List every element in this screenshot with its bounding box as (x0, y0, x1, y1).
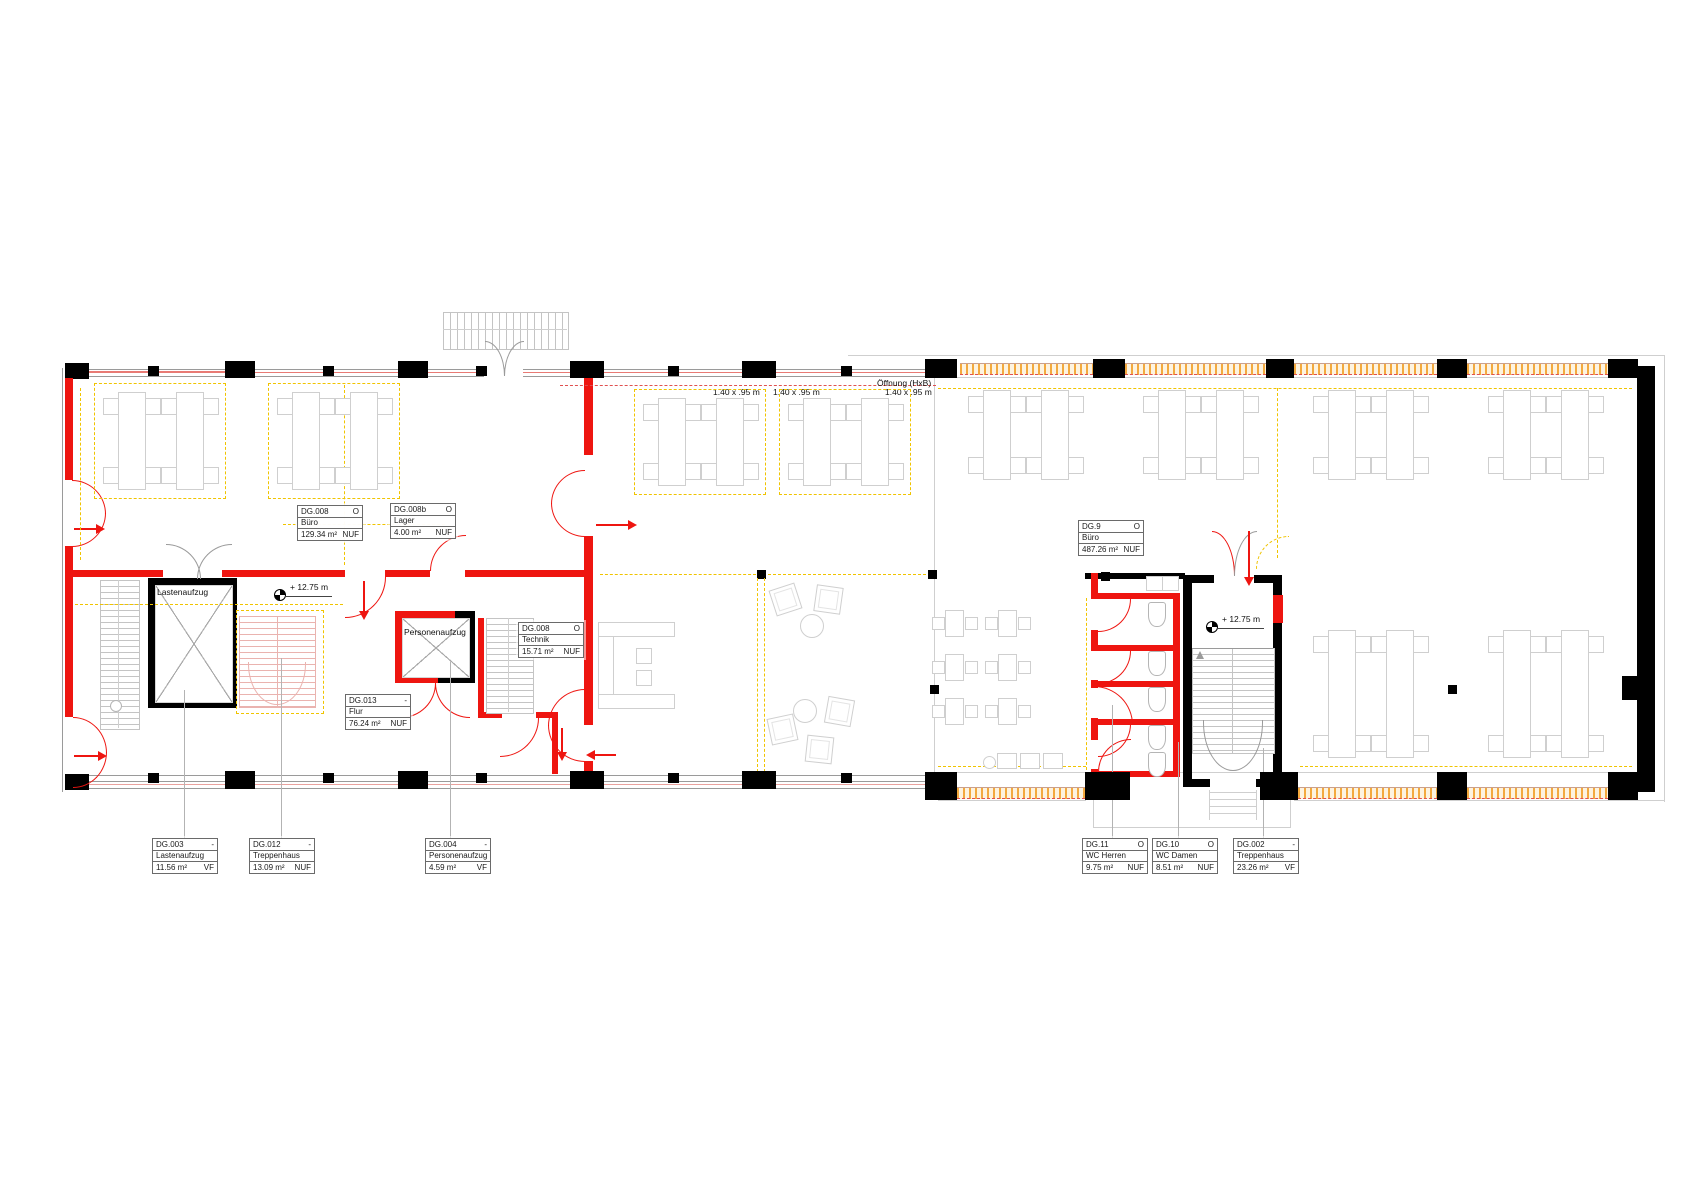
facade-pier (398, 361, 428, 378)
lounge-table (813, 584, 843, 614)
window-band (1294, 363, 1437, 375)
facade-column (323, 366, 334, 376)
room-area: 129.34 m² (301, 530, 337, 539)
room-tag-dg004-personenaufzug: DG.004- Personenaufzug 4.59 m²VF (425, 838, 491, 874)
desk-table (118, 392, 146, 490)
chair (1529, 636, 1546, 653)
toilet-fixture (1148, 752, 1166, 777)
escape-route-line (1277, 388, 1278, 558)
parapet-outline (1664, 355, 1665, 802)
room-flag: - (308, 840, 311, 849)
room-flag: - (211, 840, 214, 849)
escape-route-line (80, 388, 81, 560)
door-leaf (551, 503, 585, 537)
facade-pier (1608, 772, 1638, 800)
desk-table (1561, 390, 1589, 480)
exit-arrow-head (1244, 577, 1254, 586)
meeting-table (945, 654, 964, 681)
chair (985, 617, 998, 630)
chair (829, 404, 846, 421)
room-tag-dg11-wc-herren: DG.11O WC Herren 9.75 m²NUF (1082, 838, 1148, 874)
desk-table (1561, 630, 1589, 758)
exterior-stair (443, 312, 569, 350)
facade-pier (225, 771, 255, 789)
escape-route-line (938, 388, 1632, 389)
freight-elevator-label: Lastenaufzug (157, 588, 208, 597)
chair (1009, 457, 1026, 474)
room-tag-dg013-flur: DG.013- Flur 76.24 m²NUF (345, 694, 411, 730)
room-area: 76.24 m² (349, 719, 381, 728)
room-name: Büro (1082, 533, 1099, 542)
door-leaf (1094, 686, 1133, 725)
room-tag-dg008b-lager: DG.008bO Lager 4.00 m²NUF (390, 503, 456, 539)
room-flag: O (446, 505, 452, 514)
exit-arrow (592, 754, 616, 756)
room-name: Lager (394, 516, 414, 525)
red-wall (584, 536, 593, 725)
room-id: DG.10 (1156, 840, 1179, 849)
room-tag-dg012-treppenhaus: DG.012- Treppenhaus 13.09 m²NUF (249, 838, 315, 874)
desk-table (1328, 390, 1356, 480)
chair (1412, 735, 1429, 752)
room-name: Treppenhaus (1237, 851, 1284, 860)
room-unit: NUF (564, 647, 580, 656)
level-marker-line (1218, 628, 1264, 629)
escape-route-line (600, 574, 756, 575)
room-area: 4.00 m² (394, 528, 421, 537)
exterior-step (1209, 799, 1257, 800)
room-flag: - (484, 840, 487, 849)
chair (1018, 661, 1031, 674)
facade-pier (1260, 772, 1298, 800)
room-unit: VF (1285, 863, 1295, 872)
chair (932, 661, 945, 674)
exit-arrow-head (628, 520, 637, 530)
lounge-table (805, 735, 835, 765)
round-side-table (983, 756, 996, 769)
room-tag-dg9-buero: DG.9O Büro 487.26 m²NUF (1078, 520, 1144, 556)
chair (1242, 457, 1259, 474)
level-label: + 12.75 m (1222, 615, 1260, 624)
room-flag: O (1138, 840, 1144, 849)
sink-counter (1162, 576, 1179, 591)
room-name: Personenaufzug (429, 851, 487, 860)
desk-table (1041, 390, 1069, 480)
exit-arrow (1248, 531, 1250, 577)
room-id: DG.008 (301, 507, 329, 516)
room-id: DG.008 (522, 624, 550, 633)
passenger-elevator-label: Personenaufzug (404, 628, 466, 637)
chair (965, 661, 978, 674)
red-wall (385, 570, 430, 577)
round-table (800, 614, 824, 638)
exit-arrow (74, 755, 98, 757)
chair (1354, 735, 1371, 752)
chair (1018, 705, 1031, 718)
stair-center-line (508, 618, 509, 712)
elevator-shaft-wall (148, 578, 155, 708)
chair (202, 467, 219, 484)
red-wall (478, 618, 484, 718)
round-table (793, 699, 817, 723)
meeting-table (945, 610, 964, 637)
room-area: 23.26 m² (1237, 863, 1269, 872)
exterior-step (1209, 806, 1257, 807)
column (930, 685, 939, 694)
room-flag: O (353, 507, 359, 516)
chair (1184, 457, 1201, 474)
room-unit: VF (204, 863, 214, 872)
door-leaf (1098, 651, 1131, 684)
chair (1587, 735, 1604, 752)
desk-table (716, 398, 744, 486)
parapet-outline (1093, 827, 1291, 828)
lounge-table (766, 713, 798, 745)
escape-route-line (1086, 598, 1087, 770)
desk-table (1328, 630, 1356, 758)
parapet-outline (1093, 800, 1094, 828)
chair (887, 463, 904, 480)
room-id: DG.012 (253, 840, 281, 849)
room-area: 8.51 m² (1156, 863, 1183, 872)
level-marker-icon (274, 589, 286, 601)
desk-table (1158, 390, 1186, 480)
room-unit: NUF (1124, 545, 1140, 554)
exit-arrow-head (586, 750, 595, 760)
facade-column (148, 773, 159, 783)
chair (1354, 636, 1371, 653)
chair (1529, 735, 1546, 752)
parapet-outline (938, 800, 1086, 801)
room-unit: NUF (343, 530, 359, 539)
room-id: DG.11 (1086, 840, 1109, 849)
facade-column (841, 773, 852, 783)
chair (1067, 457, 1084, 474)
room-flag: - (1292, 840, 1295, 849)
escape-route-line (768, 574, 926, 575)
toilet-fixture (1148, 725, 1166, 750)
desk (598, 694, 675, 709)
facade-column (476, 366, 487, 376)
exterior-wall-line (62, 368, 63, 792)
stair-center-line (443, 329, 567, 330)
room-tag-dg10-wc-damen: DG.10O WC Damen 8.51 m²NUF (1152, 838, 1218, 874)
level-label: + 12.75 m (290, 583, 328, 592)
room-id: DG.008b (394, 505, 426, 514)
exit-arrow (596, 524, 628, 526)
room-name: Technik (522, 635, 549, 644)
chair (1009, 396, 1026, 413)
floor-plan-canvas: 1.40 x .95 m 1.40 x .95 m 1.40 x .95 m Ö… (0, 0, 1697, 1200)
exterior-wall-line (65, 788, 938, 789)
door-leaf (500, 718, 539, 757)
facade-pier (742, 771, 776, 789)
desk-table (176, 392, 204, 490)
room-unit: NUF (391, 719, 407, 728)
door-leaf (435, 683, 470, 718)
window-band (1467, 787, 1608, 799)
facade-pier (925, 772, 957, 800)
lounge-seat (1043, 753, 1063, 769)
exterior-step (1209, 792, 1257, 793)
desk-table (1216, 390, 1244, 480)
room-name: Lastenaufzug (156, 851, 204, 860)
chair (144, 398, 161, 415)
exit-arrow-head (359, 611, 369, 620)
elevator-car (155, 585, 233, 703)
facade-column (668, 773, 679, 783)
column (928, 570, 937, 579)
room-unit: NUF (1198, 863, 1214, 872)
room-area: 9.75 m² (1086, 863, 1113, 872)
facade-pier (570, 361, 604, 378)
red-wall (395, 611, 455, 618)
room-name: WC Damen (1156, 851, 1197, 860)
room-unit: NUF (295, 863, 311, 872)
chair (985, 705, 998, 718)
stair-landing-line (1192, 648, 1273, 649)
chair (636, 670, 652, 686)
chair (932, 705, 945, 718)
door-leaf (1098, 599, 1131, 632)
room-flag: O (574, 624, 580, 633)
stairwell-wall (1183, 575, 1214, 583)
chair (932, 617, 945, 630)
facade-column (323, 773, 334, 783)
desk-table (1386, 630, 1414, 758)
parapet-outline (1294, 800, 1664, 801)
toilet-fixture (1148, 687, 1166, 712)
facade-pier (1437, 359, 1467, 378)
exterior-wall (1637, 366, 1655, 792)
room-flag: O (1208, 840, 1214, 849)
parapet-line (65, 784, 938, 785)
facade-pier (398, 771, 428, 789)
stairwell-wall (1183, 575, 1192, 787)
escape-route-line (75, 604, 343, 605)
room-id: DG.004 (429, 840, 457, 849)
chair (1529, 457, 1546, 474)
room-tag-dg002-treppenhaus: DG.002- Treppenhaus 23.26 m²VF (1233, 838, 1299, 874)
meeting-table (998, 610, 1017, 637)
stair-walkline-arc (1203, 720, 1263, 771)
room-name: Treppenhaus (253, 851, 300, 860)
stair-up-arrow (1196, 651, 1204, 659)
red-wall (222, 570, 345, 577)
chair (1067, 396, 1084, 413)
room-id: DG.9 (1082, 522, 1101, 531)
escape-route-line (1300, 766, 1632, 767)
facade-column (476, 773, 487, 783)
door-swing-dashed (1256, 536, 1289, 569)
window-band (957, 787, 1085, 799)
toilet-fixture (1148, 651, 1166, 676)
red-wall (65, 378, 73, 480)
room-flag: O (1134, 522, 1140, 531)
lounge-table (768, 582, 802, 616)
exit-arrow (561, 728, 563, 752)
leader-line (1178, 742, 1179, 838)
chair (376, 398, 393, 415)
escape-route-line (764, 578, 765, 772)
lounge-table (824, 696, 855, 727)
desk-table (350, 392, 378, 490)
chair (1587, 636, 1604, 653)
facade-pier (1093, 359, 1125, 378)
chair (742, 463, 759, 480)
exit-arrow-head (96, 524, 105, 534)
parapet-outline (848, 355, 1664, 356)
chair (1242, 396, 1259, 413)
opening-label: Öffnung (HxB) (877, 379, 931, 388)
chair (985, 661, 998, 674)
chair (887, 404, 904, 421)
room-id: DG.002 (1237, 840, 1265, 849)
desk (598, 622, 675, 637)
room-flag: - (404, 696, 407, 705)
exit-arrow-head (98, 751, 107, 761)
chair (1587, 396, 1604, 413)
column (1101, 572, 1110, 581)
room-name: Büro (301, 518, 318, 527)
exit-arrow (363, 581, 365, 611)
red-wall (584, 378, 593, 455)
level-marker-line (286, 596, 332, 597)
desk-table (983, 390, 1011, 480)
meeting-table (998, 654, 1017, 681)
chair (318, 398, 335, 415)
chair (1587, 457, 1604, 474)
double-door-leaf (166, 544, 201, 579)
desk-table (1503, 390, 1531, 480)
room-tag-dg008-buero: DG.008O Büro 129.34 m²NUF (297, 505, 363, 541)
exterior-step (1209, 813, 1257, 814)
chair (318, 467, 335, 484)
chair (965, 705, 978, 718)
exterior-wall-line (65, 781, 938, 782)
room-unit: VF (477, 863, 487, 872)
corner-column (65, 363, 89, 379)
door-leaf (551, 470, 585, 504)
desk-table (1503, 630, 1531, 758)
meeting-table (998, 698, 1017, 725)
red-wall (465, 570, 593, 577)
sink-counter (1146, 576, 1163, 591)
chair (1412, 396, 1429, 413)
chair (1354, 396, 1371, 413)
facade-pier (742, 361, 776, 378)
door-leaf (1212, 531, 1235, 576)
chair (636, 648, 652, 664)
red-wall (68, 570, 163, 577)
desk-table (861, 398, 889, 486)
room-unit: NUF (1128, 863, 1144, 872)
facade-pier (1085, 772, 1130, 800)
exterior-step (1209, 790, 1210, 820)
toilet-fixture (1148, 602, 1166, 627)
door-leaf (548, 689, 585, 726)
window-band (960, 363, 1093, 375)
door-leaf (1234, 531, 1257, 576)
room-id: DG.003 (156, 840, 184, 849)
window-band (1298, 787, 1437, 799)
leader-line (281, 658, 282, 838)
chair (684, 463, 701, 480)
chair (1184, 396, 1201, 413)
lounge-seat (997, 753, 1017, 769)
facade-column (841, 366, 852, 376)
room-name: Flur (349, 707, 363, 716)
room-area: 11.56 m² (156, 863, 187, 872)
chair (1354, 457, 1371, 474)
chair (829, 463, 846, 480)
facade-pier (925, 359, 957, 378)
chair (684, 404, 701, 421)
red-wall (395, 611, 402, 683)
chair (1412, 457, 1429, 474)
chair (1412, 636, 1429, 653)
room-area: 487.26 m² (1082, 545, 1118, 554)
column (1448, 685, 1457, 694)
parapet-outline (1290, 800, 1291, 828)
chair (965, 617, 978, 630)
facade-pier (225, 361, 255, 378)
desk-table (658, 398, 686, 486)
room-tag-dg008-technik: DG.008O Technik 15.71 m²NUF (518, 622, 584, 658)
facade-pier (1437, 772, 1467, 800)
window-band (1125, 363, 1266, 375)
room-name: WC Herren (1086, 851, 1126, 860)
desk-table (1386, 390, 1414, 480)
room-area: 4.59 m² (429, 863, 456, 872)
chair (1529, 396, 1546, 413)
exterior-step (1256, 790, 1257, 820)
stairwell-wall (1183, 779, 1210, 787)
facade-column (148, 366, 159, 376)
red-door-panel (1273, 595, 1283, 623)
leader-line (184, 690, 185, 838)
elevator-shaft-wall (148, 578, 237, 585)
chair (144, 467, 161, 484)
meeting-table (945, 698, 964, 725)
stair-walkline-circle (110, 700, 122, 712)
room-area: 15.71 m² (522, 647, 554, 656)
facade-pier (570, 771, 604, 789)
leader-line (450, 662, 451, 838)
chair (742, 404, 759, 421)
escape-route-zone (236, 610, 324, 714)
facade-pier (1266, 359, 1294, 378)
escape-route-line (757, 578, 758, 772)
chair (376, 467, 393, 484)
door-leaf (430, 535, 466, 571)
facade-column (668, 366, 679, 376)
desk-table (292, 392, 320, 490)
column (1622, 676, 1637, 700)
facade-pier (1608, 359, 1638, 378)
lounge-seat (1020, 753, 1040, 769)
exterior-wall-line (65, 775, 938, 776)
window-band (1467, 363, 1608, 375)
room-id: DG.013 (349, 696, 377, 705)
room-tag-dg003-lastenaufzug: DG.003- Lastenaufzug 11.56 m²VF (152, 838, 218, 874)
chair (1018, 617, 1031, 630)
exit-arrow-head (557, 752, 567, 761)
room-area: 13.09 m² (253, 863, 285, 872)
chair (202, 398, 219, 415)
double-door-leaf (197, 544, 232, 579)
room-unit: NUF (436, 528, 452, 537)
